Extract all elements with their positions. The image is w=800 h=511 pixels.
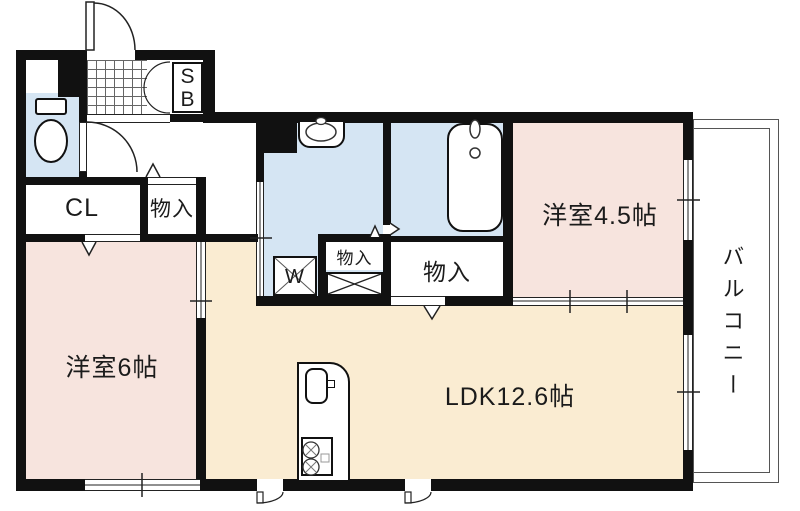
wall <box>16 177 148 185</box>
washer-label: W <box>273 265 317 289</box>
large-storage-label: 物入 <box>391 257 503 283</box>
kitchen-sink-icon <box>305 368 328 404</box>
large-storage-door <box>391 296 445 306</box>
wall <box>431 479 693 491</box>
shoebox-label-b: B <box>180 88 194 111</box>
wall <box>200 479 257 491</box>
entrance-door-arc <box>94 3 135 50</box>
hall-storage-label: 物入 <box>142 196 202 220</box>
shoebox-door-arc-top <box>144 62 170 88</box>
entrance-door-leaf <box>86 2 94 50</box>
hall-storage-door <box>148 177 196 185</box>
kitchen-faucet-icon <box>327 380 335 388</box>
sliding-door-west45-ldk <box>513 297 683 306</box>
genkan-step-edge <box>87 114 170 123</box>
exterior-door-leaf-1 <box>257 492 263 503</box>
stove-icon <box>301 437 333 476</box>
closet-label: CL <box>42 194 122 222</box>
exterior-door-arc-2 <box>405 492 431 503</box>
genkan-tile-floor <box>87 60 147 115</box>
shoebox-label: S B <box>172 63 203 112</box>
western-room-6-label: 洋室6帖 <box>32 352 192 380</box>
wall <box>391 236 503 242</box>
ldk-label: LDK12.6帖 <box>410 381 610 409</box>
wall <box>16 234 85 242</box>
closet-door <box>85 234 140 242</box>
ldk-floor-strip <box>206 242 256 306</box>
shoebox-label-s: S <box>180 65 194 88</box>
wall <box>683 240 693 335</box>
exterior-door-arc-1 <box>257 492 283 503</box>
utility-cross-box <box>326 272 383 296</box>
wall <box>16 479 85 491</box>
wall <box>503 112 513 306</box>
exterior-door-gap-2 <box>405 479 431 491</box>
wall <box>79 53 87 122</box>
sliding-door-west6-ldk <box>196 242 206 318</box>
balcony-label: バルコニー <box>693 215 770 435</box>
wall <box>383 122 391 225</box>
bathtub-icon <box>447 123 503 232</box>
washbasin-counter-icon <box>298 120 345 148</box>
wall <box>256 296 391 306</box>
toilet-door-arc <box>87 122 137 172</box>
utility-storage-label: 物入 <box>326 246 383 266</box>
western-room-4-5-label: 洋室4.5帖 <box>520 200 680 228</box>
window-ldk <box>683 335 693 450</box>
wall <box>318 242 326 298</box>
wall <box>58 53 79 97</box>
toilet-door-leaf <box>79 122 87 172</box>
toilet-tank-icon <box>35 98 67 115</box>
window-west6 <box>85 479 200 491</box>
shoebox-door-arc-bottom <box>144 88 170 113</box>
wall <box>16 50 26 491</box>
wall <box>256 112 264 182</box>
exterior-door-gap-1 <box>257 479 283 491</box>
exterior-door-leaf-2 <box>405 492 411 503</box>
wall <box>318 234 391 242</box>
hall-storage-door-caret <box>146 164 160 177</box>
floorplan: S B CL 物入 物入 物入 W 洋室6帖 洋室4.5帖 LDK12.6帖 バ… <box>0 0 800 511</box>
wall <box>683 112 693 160</box>
wall <box>196 318 206 479</box>
window-west45 <box>683 160 693 240</box>
